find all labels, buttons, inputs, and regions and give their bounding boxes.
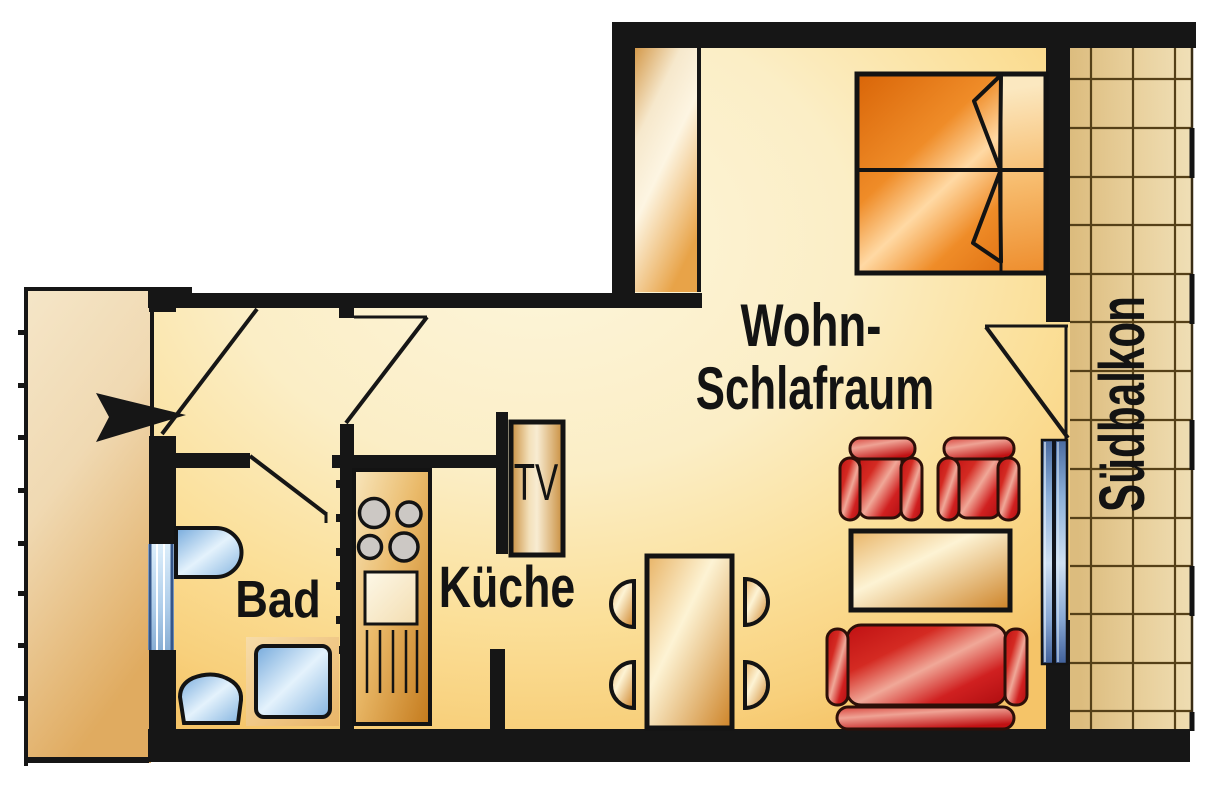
svg-text:Bad: Bad: [235, 571, 320, 629]
svg-text:TV: TV: [514, 454, 559, 512]
svg-text:Südbalkon: Südbalkon: [1087, 296, 1158, 512]
svg-text:Wohn-: Wohn-: [741, 293, 882, 359]
svg-text:Schlafraum: Schlafraum: [696, 355, 934, 422]
svg-text:Küche: Küche: [439, 554, 575, 619]
